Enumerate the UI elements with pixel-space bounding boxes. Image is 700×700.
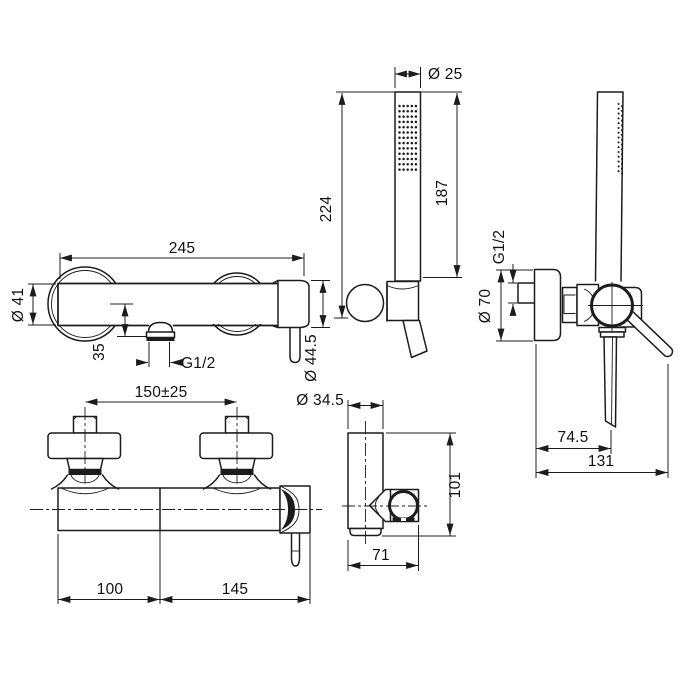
dim-label-71: 71 (372, 547, 390, 564)
outlet-fitting (147, 323, 175, 342)
dim-label-74-5: 74.5 (558, 429, 589, 446)
dim-handshower-length: 187 (421, 92, 463, 278)
dim-label-25: Ø 25 (428, 66, 462, 83)
dim-inlet-spacing: 150±25 (86, 384, 237, 402)
flange-connector (563, 288, 578, 323)
dim-label-150: 150±25 (135, 384, 188, 401)
dim-handshower-diameter: Ø 25 (395, 66, 462, 88)
technical-drawing-page: Ø 25 187 224 (0, 0, 700, 700)
spray-nozzle-dots (398, 105, 417, 171)
shower-hose-side (604, 337, 617, 427)
dim-total-depth: 131 (537, 364, 669, 478)
end-cap (278, 281, 309, 328)
handle-end-bottom (280, 486, 310, 566)
dim-label-g12-side: G1/2 (491, 230, 508, 264)
mixer-bottom-view: 150±25 100 145 (30, 384, 322, 604)
holder-wall-flange (347, 285, 384, 322)
handshower-front-view: Ø 25 187 224 (318, 66, 462, 358)
holder-ball-joint (390, 492, 418, 520)
handshower-wand (395, 92, 421, 281)
dim-label-224: 224 (318, 196, 335, 223)
inlet-union-left (48, 407, 121, 494)
mixer-side-view: G1/2 Ø 70 74.5 131 (477, 92, 672, 478)
dim-outlet-thread: G1/2 (138, 342, 215, 372)
dim-holder-diameter: Ø 34.5 (296, 392, 383, 429)
dim-label-44-5: Ø 44.5 (303, 334, 320, 382)
dim-label-34-5: Ø 34.5 (296, 392, 344, 409)
inlet-union-right (200, 407, 273, 494)
dim-label-100: 100 (97, 581, 124, 598)
lever-pin-bottom (292, 533, 300, 566)
dim-label-101: 101 (447, 472, 464, 498)
dim-body-diameter: Ø 41 (10, 284, 56, 325)
dim-bottom-spans: 100 145 (58, 531, 310, 605)
dim-label-70: Ø 70 (477, 289, 494, 324)
dim-body-length: 245 (60, 240, 304, 279)
dim-label-g12-front: G1/2 (181, 355, 215, 372)
shower-mixer-dimension-drawing: Ø 25 187 224 (0, 0, 700, 700)
dim-label-145: 145 (222, 581, 248, 598)
wall-flange (535, 270, 561, 341)
dim-label-187: 187 (434, 180, 451, 206)
dim-inlet-thread: G1/2 (491, 230, 517, 314)
dim-label-35: 35 (91, 343, 108, 361)
dim-label-41: Ø 41 (10, 288, 27, 322)
mixer-front-view: 245 Ø 41 35 G1/2 Ø 44.5 (10, 240, 330, 382)
shower-hose (403, 321, 427, 358)
wall-nipple (518, 283, 535, 303)
handshower-wand-side (596, 92, 624, 281)
dim-flange-diameter: Ø 70 (477, 270, 533, 341)
dim-label-245: 245 (169, 240, 195, 257)
holder-detail-view: Ø 34.5 101 71 (296, 392, 464, 571)
dim-handshower-total-length: 224 (318, 92, 395, 318)
dim-label-131: 131 (588, 453, 614, 470)
